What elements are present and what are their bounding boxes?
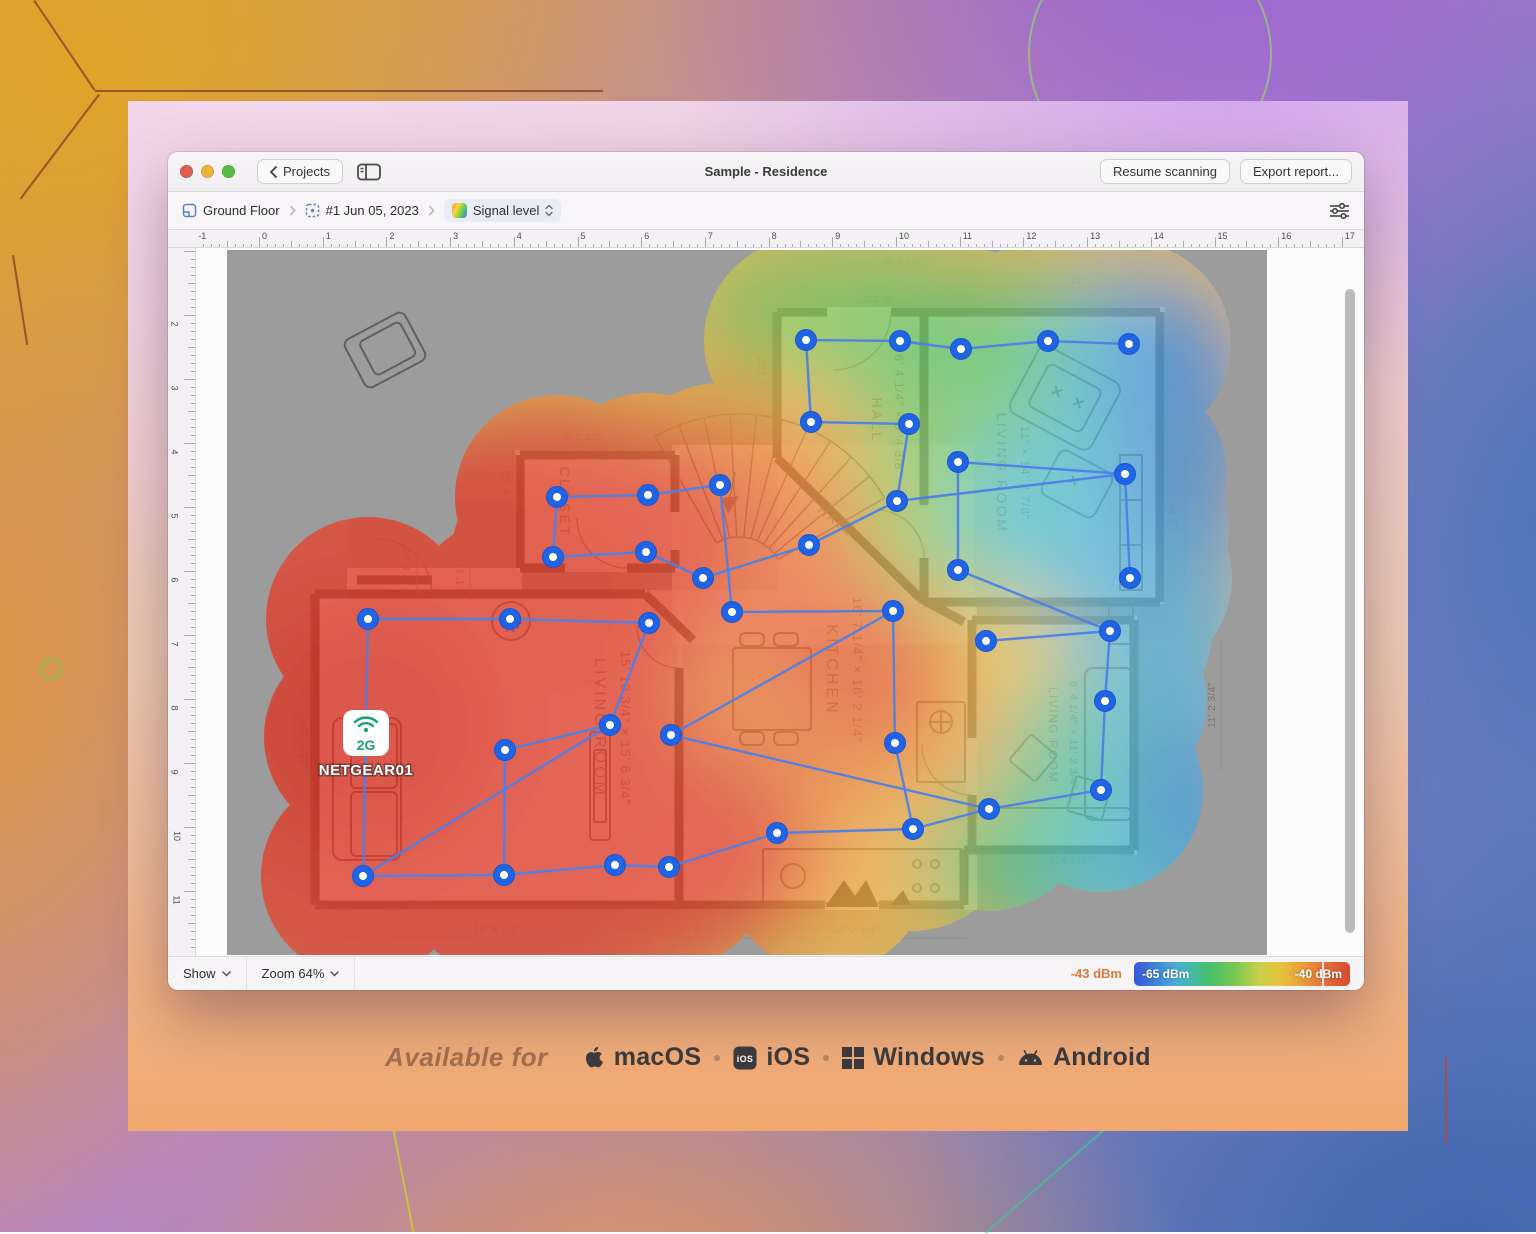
- back-button-label: Projects: [283, 164, 330, 179]
- sidebar-toggle-button[interactable]: [357, 163, 381, 181]
- updown-chevrons-icon: [545, 204, 553, 217]
- survey-path-segment: [504, 750, 505, 875]
- survey-path-segment: [732, 611, 893, 612]
- zoom-window-button[interactable]: [222, 165, 235, 178]
- chevron-left-icon: [270, 166, 277, 178]
- decor-line: [1445, 1058, 1447, 1144]
- survey-point[interactable]: [890, 331, 911, 352]
- survey-point[interactable]: [976, 631, 997, 652]
- decor-line: [20, 94, 100, 200]
- survey-point[interactable]: [1115, 464, 1136, 485]
- ios-icon: iOS: [733, 1046, 757, 1070]
- heatmap-gradient-icon: [452, 203, 467, 218]
- access-point-name: NETGEAR01: [319, 762, 414, 779]
- chevron-down-icon: [330, 971, 339, 977]
- signal-scale-legend[interactable]: -65 dBm -40 dBm: [1134, 962, 1350, 986]
- survey-point[interactable]: [722, 602, 743, 623]
- survey-point[interactable]: [1100, 621, 1121, 642]
- filter-sliders-icon[interactable]: [1329, 203, 1350, 219]
- survey-path-segment: [806, 340, 900, 341]
- survey-point[interactable]: [796, 330, 817, 351]
- platform-windows: Windows: [842, 1043, 985, 1072]
- close-button[interactable]: [180, 165, 193, 178]
- survey-point[interactable]: [600, 715, 621, 736]
- decor-line: [985, 1125, 1109, 1233]
- signal-heatmap: [227, 250, 1267, 955]
- survey-point[interactable]: [500, 609, 521, 630]
- sidebar-icon: [357, 163, 381, 181]
- survey-point[interactable]: [639, 613, 660, 634]
- traffic-lights: [180, 165, 235, 178]
- survey-point[interactable]: [801, 412, 822, 433]
- survey-point[interactable]: [659, 857, 680, 878]
- title-bar: Projects Sample - Residence Resume scann…: [168, 152, 1364, 192]
- scale-max-label: -40 dBm: [1295, 967, 1342, 981]
- decor-line: [1451, 1148, 1536, 1218]
- app-window: Projects Sample - Residence Resume scann…: [168, 152, 1364, 990]
- survey-point[interactable]: [951, 339, 972, 360]
- export-report-button[interactable]: Export report...: [1240, 159, 1352, 184]
- survey-point[interactable]: [693, 568, 714, 589]
- apple-icon: [582, 1044, 605, 1071]
- zoom-menu[interactable]: Zoom 64%: [247, 957, 356, 990]
- decor-line: [391, 1122, 414, 1232]
- survey-point[interactable]: [547, 487, 568, 508]
- floor-plan-icon: [182, 203, 197, 218]
- scan-snapshot-icon: [305, 203, 320, 218]
- platform-macos: macOS: [582, 1043, 702, 1072]
- gradient-card: Projects Sample - Residence Resume scann…: [128, 101, 1408, 1131]
- survey-point[interactable]: [767, 823, 788, 844]
- chevron-down-icon: [222, 971, 231, 977]
- survey-point[interactable]: [358, 609, 379, 630]
- survey-point[interactable]: [494, 865, 515, 886]
- platform-android: Android: [1017, 1043, 1151, 1072]
- horizontal-ruler: -101234567891011121314151617: [168, 230, 1364, 248]
- survey-point[interactable]: [903, 819, 924, 840]
- survey-point[interactable]: [710, 475, 731, 496]
- floorplan-viewport[interactable]: LIVING ROOM15' 10 3/4" × 15' 6 3/4"KITCH…: [227, 250, 1267, 955]
- visualization-select[interactable]: Signal level: [444, 199, 562, 222]
- survey-point[interactable]: [353, 866, 374, 887]
- available-for-label: Available for: [385, 1042, 548, 1073]
- survey-canvas[interactable]: LIVING ROOM15' 10 3/4" × 15' 6 3/4"KITCH…: [196, 248, 1364, 956]
- survey-point[interactable]: [495, 740, 516, 761]
- breadcrumb-snapshot[interactable]: #1 Jun 05, 2023: [305, 203, 419, 218]
- survey-point[interactable]: [1095, 691, 1116, 712]
- resume-scanning-button[interactable]: Resume scanning: [1100, 159, 1230, 184]
- survey-point[interactable]: [948, 452, 969, 473]
- survey-point[interactable]: [1120, 568, 1141, 589]
- survey-point[interactable]: [799, 535, 820, 556]
- back-to-projects-button[interactable]: Projects: [257, 159, 343, 184]
- decor-line: [33, 0, 95, 91]
- survey-point[interactable]: [885, 733, 906, 754]
- android-icon: [1017, 1050, 1044, 1066]
- survey-point[interactable]: [605, 855, 626, 876]
- survey-path-segment: [363, 875, 504, 876]
- survey-point[interactable]: [543, 547, 564, 568]
- survey-point[interactable]: [1091, 780, 1112, 801]
- survey-point[interactable]: [661, 725, 682, 746]
- breadcrumb-floor[interactable]: Ground Floor: [182, 203, 280, 218]
- platforms-row: Available for macOS iOS iOS Windows Andr…: [128, 1042, 1408, 1073]
- survey-point[interactable]: [979, 799, 1000, 820]
- minimize-button[interactable]: [201, 165, 214, 178]
- signal-reading: -43 dBm: [1071, 966, 1122, 981]
- survey-point[interactable]: [1119, 334, 1140, 355]
- survey-point[interactable]: [948, 560, 969, 581]
- separator-dot: [823, 1055, 829, 1061]
- show-menu[interactable]: Show: [168, 957, 247, 990]
- vertical-ruler: 23456789101112: [168, 248, 196, 956]
- survey-point[interactable]: [1038, 331, 1059, 352]
- decor-circle: [40, 658, 62, 680]
- separator-dot: [714, 1055, 720, 1061]
- access-point-band: 2G: [357, 737, 376, 753]
- scale-min-label: -65 dBm: [1142, 967, 1189, 981]
- windows-icon: [842, 1047, 864, 1069]
- platform-ios: iOS iOS: [733, 1043, 810, 1072]
- survey-point[interactable]: [883, 601, 904, 622]
- chevron-right-icon: [428, 205, 435, 216]
- decor-line: [12, 255, 28, 345]
- vertical-scrollbar[interactable]: [1345, 289, 1355, 933]
- survey-point[interactable]: [636, 542, 657, 563]
- chevron-right-icon: [289, 205, 296, 216]
- separator-dot: [998, 1055, 1004, 1061]
- survey-point[interactable]: [638, 485, 659, 506]
- status-bar: Show Zoom 64% -43 dBm -65 dBm -40 dBm: [168, 956, 1364, 990]
- marketing-background: Projects Sample - Residence Resume scann…: [0, 0, 1536, 1232]
- survey-point[interactable]: [887, 491, 908, 512]
- toolbar: Ground Floor #1 Jun 05, 2023 Signal leve…: [168, 192, 1364, 230]
- survey-point[interactable]: [899, 414, 920, 435]
- decor-line: [95, 90, 603, 92]
- svg-text:iOS: iOS: [737, 1054, 753, 1064]
